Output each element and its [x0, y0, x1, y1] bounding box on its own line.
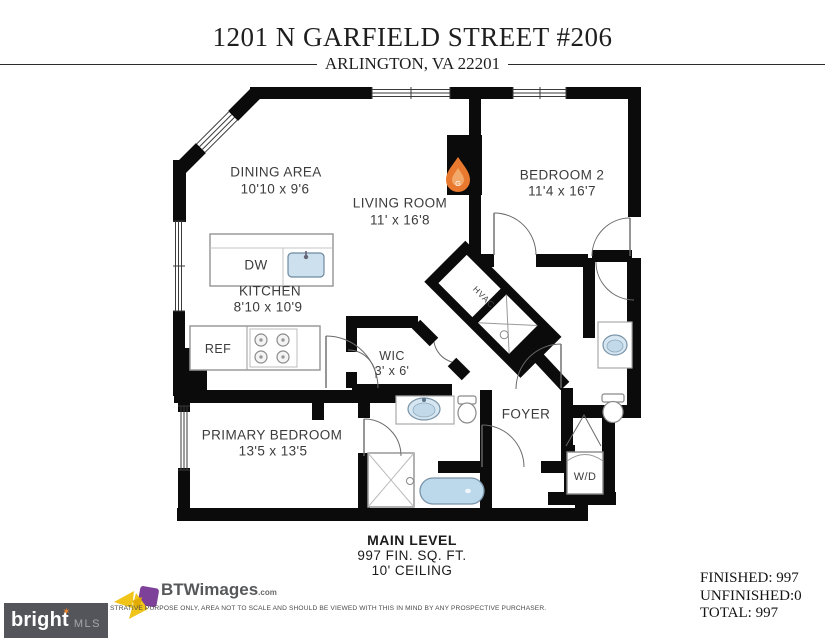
room-label-kitchen: KITCHEN	[239, 284, 301, 299]
dining-window	[197, 112, 237, 152]
toilet2-tank	[602, 394, 624, 402]
level-ceiling-height: 10' CEILING	[372, 563, 453, 578]
room-dims-kitchen: 8'10 x 10'9	[234, 300, 303, 315]
room-label-living: LIVING ROOM	[353, 196, 447, 211]
refrigerator-label: REF	[205, 342, 231, 356]
total-finished: FINISHED: 997	[700, 570, 802, 588]
floor-plan-page: 1201 N GARFIELD STREET #206 ARLINGTON, V…	[0, 0, 825, 638]
brand-name: BTWimages	[161, 580, 258, 599]
room-label-bedroom2: BEDROOM 2	[520, 168, 605, 183]
photographer-brand: BTWimages.com	[161, 580, 277, 600]
total-overall: TOTAL: 997	[700, 605, 802, 623]
brand-suffix: .com	[258, 588, 277, 597]
toilet	[458, 403, 476, 423]
dishwasher-label: DW	[244, 258, 267, 273]
room-label-dining: DINING AREA	[230, 165, 321, 180]
mls-logo: bright✶ MLS	[4, 603, 108, 638]
disclaimer-text: STRATIVE PURPOSE ONLY, AREA NOT TO SCALE…	[110, 605, 546, 612]
mls-logo-bright: bright✶	[11, 609, 69, 632]
room-label-primary-bedroom: PRIMARY BEDROOM	[202, 428, 343, 443]
room-dims-bedroom2: 11'4 x 16'7	[528, 184, 596, 199]
mls-logo-mls: MLS	[74, 618, 101, 630]
level-name: MAIN LEVEL	[367, 532, 457, 548]
toilet2	[603, 402, 623, 423]
bathtub	[420, 478, 484, 504]
area-totals: FINISHED: 997 UNFINISHED:0 TOTAL: 997	[700, 570, 802, 623]
room-label-wic: WIC	[379, 349, 405, 363]
room-label-foyer: FOYER	[502, 407, 551, 422]
room-dims-dining: 10'10 x 9'6	[241, 182, 310, 197]
room-dims-living: 11' x 16'8	[370, 213, 430, 228]
primary-bath	[368, 396, 484, 507]
washer-dryer-label: W/D	[574, 471, 597, 483]
fireplace-gas-letter: G	[455, 179, 461, 188]
mls-spark-icon: ✶	[63, 607, 70, 616]
kitchen-island	[210, 234, 333, 286]
total-unfinished: UNFINISHED:0	[700, 588, 802, 606]
room-dims-primary-bedroom: 13'5 x 13'5	[239, 444, 308, 459]
level-finished-area: 997 FIN. SQ. FT.	[357, 548, 466, 563]
room-dims-wic: 3' x 6'	[375, 364, 410, 378]
